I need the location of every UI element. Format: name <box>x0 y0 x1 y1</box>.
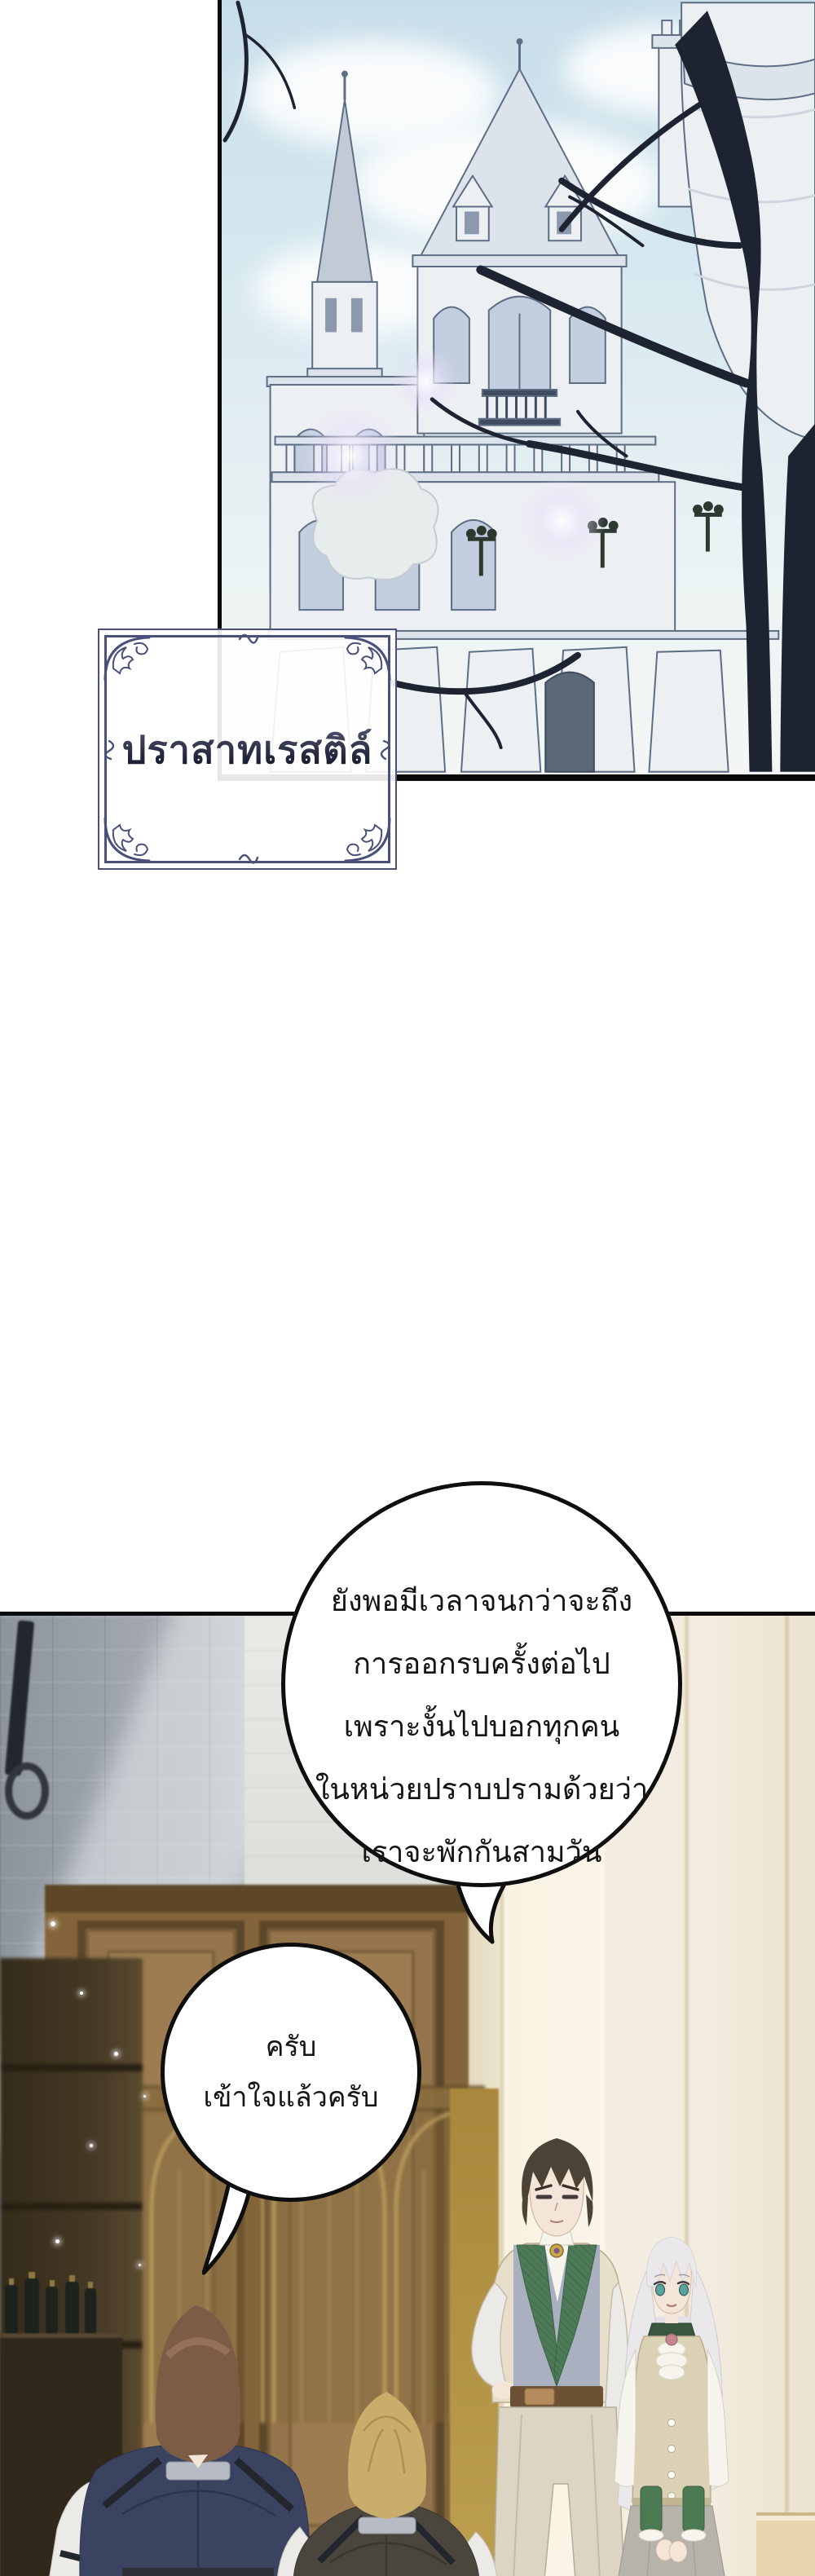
corner-flourish-icon <box>342 815 393 866</box>
sparkle <box>80 1992 83 1995</box>
corner-flourish-icon <box>102 633 152 683</box>
sparkle <box>139 2264 141 2266</box>
location-label-box: ปราสาทเรสติล์ <box>98 629 397 870</box>
bubble-line: ยังพอมีเวลาจนกว่าจะถึง <box>331 1570 632 1633</box>
character-commander <box>472 2138 628 2576</box>
sparkle <box>55 2239 59 2243</box>
bubble-tail <box>455 1880 513 1945</box>
bubble-line: ในหน่วยปราบปรามด้วยว่า <box>315 1758 648 1821</box>
sparkle <box>114 2052 118 2056</box>
bubble-line: เพราะงั้นไปบอกทุกคน <box>344 1696 620 1758</box>
bubble-line: ครับ <box>266 2022 317 2072</box>
corner-flourish-icon <box>342 633 393 683</box>
bubble-line: การออกรบครั้งต่อไป <box>353 1633 610 1696</box>
sparkle <box>90 2144 93 2147</box>
character-knight-blond-back <box>277 2392 497 2576</box>
edge-flourish-icon <box>99 739 120 761</box>
bubble-line: เราจะพักกันสามวัน <box>362 1821 602 1884</box>
edge-flourish-icon <box>238 629 259 650</box>
comic-page: ปราสาทเรสติล์ <box>0 0 815 2576</box>
edge-flourish-icon <box>375 739 396 761</box>
location-label-text: ปราสาทเรสติล์ <box>122 719 373 780</box>
corner-flourish-icon <box>102 815 152 866</box>
narration-bubble: ยังพอมีเวลาจนกว่าจะถึง การออกรบครั้งต่อไ… <box>281 1481 682 1887</box>
sparkle <box>51 1921 55 1926</box>
character-knight-brown-back <box>49 2305 313 2576</box>
character-silver-haired-woman <box>615 2237 729 2576</box>
bubble-line: เข้าใจแล้วครับ <box>204 2072 379 2123</box>
reply-bubble: ครับ เข้าใจแล้วครับ <box>161 1943 421 2202</box>
edge-flourish-icon <box>238 849 259 870</box>
sparkle <box>143 2095 146 2097</box>
